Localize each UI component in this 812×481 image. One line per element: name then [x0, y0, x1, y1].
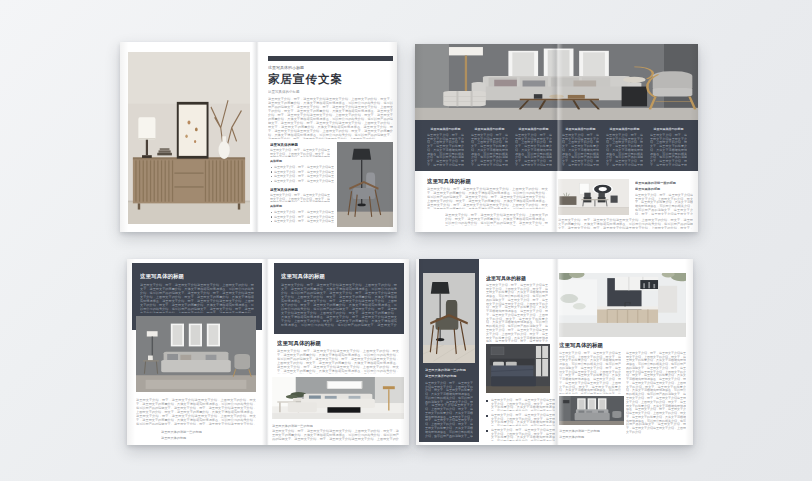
spread-bottom-right: 这里写具体的详细一些的标题 这里写具体排列的标题 这里写文字介绍，写字，这里写文… — [416, 259, 693, 445]
photo-sideboard — [128, 52, 250, 224]
bullet-block: 这里写文字介绍，写字，这里写文字介绍这里写文字介绍，上面写文字的介绍，写文字，这… — [486, 413, 555, 426]
left-caption-2: 这里写具体的标题 — [161, 435, 253, 440]
cover-small-title: 这里写具体的小标题 — [268, 65, 393, 71]
band-col-title: 这里写具体排列的标题 — [427, 127, 464, 132]
hero-bottom-left-text: 这里写文字介绍，写字，这里写文字介绍这里写文字介绍，上面写文字的介绍，写文字，这… — [427, 187, 548, 209]
photo-livingroom-gray — [136, 316, 256, 392]
cover-section-1-subheading: 具体标题 — [270, 159, 330, 164]
wall-frames — [508, 49, 608, 80]
coffee-table — [327, 407, 360, 412]
right-page-col2-text: 这里写文字介绍，写字，这里写文字介绍这里写文字介绍，上面写文字的介绍，写文字，这… — [626, 351, 686, 441]
wall-frames — [577, 398, 606, 410]
cover-section-2-subheading: 具体标题 — [270, 204, 330, 209]
band-col-title: 这里写具体排列的标题 — [650, 127, 687, 132]
dining-illustration — [558, 179, 629, 215]
fold-seam — [252, 42, 264, 232]
right-caption: 这里写具体的详细一些的标题 — [272, 423, 392, 428]
kitchen-illustration — [559, 273, 686, 337]
gray-sofa — [575, 409, 610, 420]
spread-top-left-cover: 这里写具体的小标题 家居宣传文案 这里写具体的小标题 这里写文字介绍，写字，这里… — [120, 42, 397, 232]
upper-cabinets — [615, 277, 658, 290]
cabinet — [133, 157, 245, 209]
right-page-caption-1: 这里写具体的详细一些的标题 — [559, 428, 625, 433]
mockup-backdrop: 这里写具体的小标题 家居宣传文案 这里写具体的小标题 这里写文字介绍，写字，这里… — [0, 0, 812, 481]
band-col-title: 这里写具体排列的标题 — [606, 127, 643, 132]
hero-bottom-full-text: 这里写文字介绍，写字，这里写文字介绍这里写文字介绍，上面写文字的介绍，写文字，这… — [558, 218, 693, 229]
photo-bedroom — [486, 344, 550, 393]
band-col-text: 这里写文字介绍，写字，这里写文字介绍这里写文字介绍，上面写文字的介绍，写文字，这… — [562, 133, 599, 166]
right-page-caption-2: 这里写具体的标题 — [559, 434, 625, 439]
bullet-item: 这里写文字介绍，写字，这里写文字介绍这里写文字介绍。 — [270, 219, 334, 224]
bullet-block: 这里写文字介绍，写字，这里写文字介绍这里写文字介绍，上面写文字的介绍，写文字，这… — [486, 398, 555, 411]
ottoman — [443, 91, 485, 106]
band-col-text: 这里写文字介绍，写字，这里写文字介绍这里写文字介绍，上面写文字的介绍，写文字，这… — [606, 133, 643, 166]
band-col-title: 这里写具体排列的标题 — [562, 127, 599, 132]
cover-section-2-title: 这里写具体的标题 — [270, 187, 332, 192]
framed-art — [177, 102, 209, 159]
wall-art — [327, 381, 361, 389]
hero-bottom-right-text: 这里写文字介绍，写字，这里写文字介绍这里写文字介绍，上面写文字的介绍，写文字，这… — [635, 193, 693, 215]
bed — [490, 359, 536, 386]
wall-box — [563, 400, 570, 403]
photo-sofa-white — [272, 377, 404, 419]
sofa — [161, 352, 231, 373]
right-page-title: 这里写具体的标题 — [559, 341, 669, 349]
right-body-text-2: 这里写文字介绍，写字，这里写文字介绍这里写文字介绍，上面写文字的介绍，写文字，这… — [272, 429, 399, 441]
sofa-gray-illustration — [559, 396, 624, 425]
sofa-white-illustration — [272, 377, 404, 419]
cover-subtitle: 这里写具体的小标题 — [268, 89, 393, 94]
left-body-text: 这里写文字介绍，写字，这里写文字介绍这里写文字介绍，上面写文字的介绍，写文字，这… — [136, 398, 256, 425]
spread-bottom-left: 这里写具体的标题 这里写文字介绍，写字，这里写文字介绍这里写文字介绍，上面写文字… — [127, 259, 409, 445]
panel-text-right: 这里写文字介绍，写字，这里写文字介绍这里写文字介绍，上面写文字的介绍，写文字，这… — [281, 283, 397, 327]
side-chair — [612, 411, 621, 418]
panel-title-left: 这里写具体的标题 — [140, 272, 256, 280]
hero-bottom-left-title: 这里写具体的标题 — [427, 177, 547, 185]
right-page-col1-text: 这里写文字介绍，写字，这里写文字介绍这里写文字介绍，上面写文字的介绍，写文字，这… — [559, 351, 621, 394]
right-body-text: 这里写文字介绍，写字，这里写文字介绍这里写文字介绍，上面写文字的介绍，写文字，这… — [277, 349, 399, 374]
bullet-block: 这里写文字介绍，写字，这里写文字介绍这里写文字介绍，上面写文字的介绍，写文字，这… — [486, 428, 555, 441]
triptych-frames — [171, 324, 220, 347]
hero-bottom-left-indent-text: 这里写文字介绍，写字，这里写文字介绍这里写文字介绍，上面写文字的介绍，写文字，这… — [445, 213, 548, 226]
band-col-text: 这里写文字介绍，写字，这里写文字介绍这里写文字介绍，上面写文字的介绍，写文字，这… — [650, 133, 687, 166]
photo-sofa-gray — [559, 396, 624, 425]
title-rule — [268, 56, 393, 61]
band-col-title: 这里写具体排列的标题 — [515, 127, 552, 132]
panel-title-right: 这里写具体的标题 — [281, 272, 397, 280]
left-page-text: 这里写文字介绍，写字，这里写文字介绍这里写文字介绍，上面写文字的介绍，写文字，这… — [486, 283, 548, 342]
panel-text-left: 这里写文字介绍，写字，这里写文字介绍这里写文字介绍，上面写文字的介绍，写文字，这… — [140, 283, 254, 313]
left-page-title: 这里写具体的标题 — [486, 274, 550, 281]
photo-dining — [558, 179, 629, 215]
sidebar-text: 这里写文字介绍，写字，这里写文字介绍这里写文字介绍，上面写文字的介绍，写文字，这… — [425, 381, 473, 438]
cover-section-1-title: 这里写具体的标题 — [270, 142, 332, 147]
livingroom-gray-illustration — [136, 316, 256, 392]
spread-top-right-hero: 这里写具体排列的标题 这里写文字介绍，写字，这里写文字介绍这里写文字介绍，上面写… — [415, 44, 698, 232]
band-col-text: 这里写文字介绍，写字，这里写文字介绍这里写文字介绍，上面写文字的介绍，写文字，这… — [471, 133, 508, 166]
armchair-wood-illustration — [423, 273, 475, 363]
cover-intro-text: 这里写文字介绍，写字，这里写文字介绍这里写文字介绍，上面写文字的介绍，写文字，这… — [268, 97, 393, 139]
band-col-text: 这里写文字介绍，写字，这里写文字介绍这里写文字介绍，上面写文字的介绍，写文字，这… — [427, 133, 464, 166]
hero-bottom-right-caption-2: 这里写具体的标题 — [635, 186, 695, 191]
sideboard-illustration — [128, 52, 250, 224]
photo-armchair-wood — [423, 273, 475, 363]
armchair-lamp-illustration — [337, 142, 393, 227]
sidebar-caption-1: 这里写具体的详细一些的标题 — [425, 367, 475, 372]
left-caption-1: 这里写具体的详细一些的标题 — [161, 429, 253, 434]
band-col-text: 这里写文字介绍，写字，这里写文字介绍这里写文字介绍，上面写文字的介绍，写文字，这… — [515, 133, 552, 166]
hero-bottom-right-caption-1: 这里写具体的详细一些的标题 — [635, 180, 695, 185]
photo-kitchen — [559, 273, 686, 337]
right-section-title: 这里写具体的标题 — [277, 339, 397, 347]
livingroom-hero-illustration — [415, 44, 698, 120]
photo-livingroom-hero — [415, 44, 698, 120]
band-col-title: 这里写具体排列的标题 — [471, 127, 508, 132]
cover-section-1-text: 这里写文字介绍，写字，这里写文字介绍这里写文字介绍，上面写文字的介绍，写文字，这… — [270, 148, 330, 157]
cover-main-title: 家居宣传文案 — [268, 73, 396, 87]
tall-cabinet — [658, 286, 677, 313]
sidebar-caption-2: 这里写具体排列的标题 — [425, 373, 475, 378]
photo-armchair-lamp — [337, 142, 393, 227]
bedroom-illustration — [486, 344, 550, 393]
bullet-item: 这里写文字介绍，写字，这里写文字介绍这里写文字介绍。 — [270, 179, 334, 184]
cover-section-2-text: 这里写文字介绍，写字，这里写文字介绍这里写文字介绍，上面写文字的介绍，写文字，这… — [270, 193, 330, 202]
